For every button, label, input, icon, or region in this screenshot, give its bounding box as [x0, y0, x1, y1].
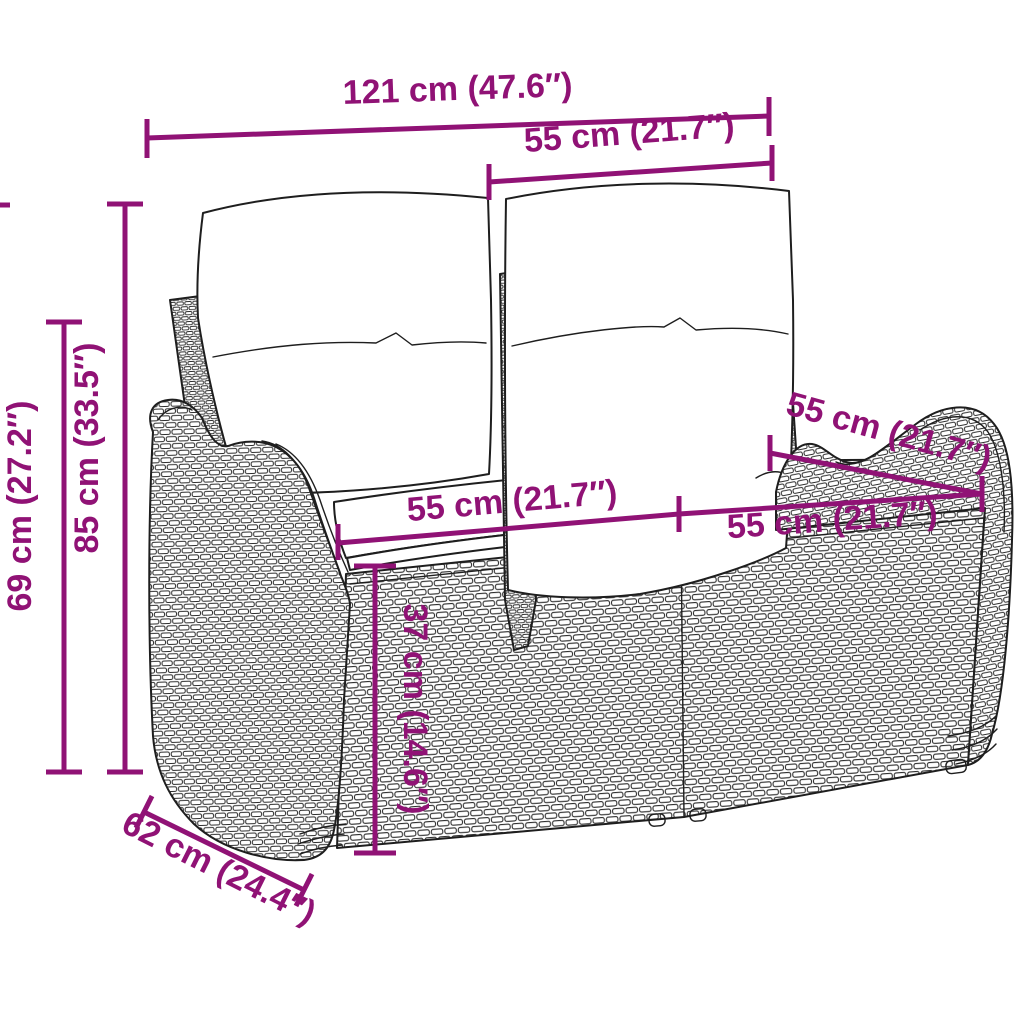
dimension-label: 55 cm (21.7″): [523, 106, 736, 160]
dimension-overall-height: 85 cm (33.5″): [68, 204, 143, 772]
dimension-label: 85 cm (33.5″): [68, 343, 106, 554]
diagram-canvas: 121 cm (47.6″) 55 cm (21.7″) 85 cm (33.5…: [0, 0, 1024, 1024]
dimension-label: 69 cm (27.2″): [1, 401, 39, 612]
dimension-label: 37 cm (14.6″): [396, 604, 434, 815]
dimension-label: 121 cm (47.6″): [342, 66, 573, 112]
bench-dimension-diagram: 121 cm (47.6″) 55 cm (21.7″) 85 cm (33.5…: [0, 0, 1024, 1024]
